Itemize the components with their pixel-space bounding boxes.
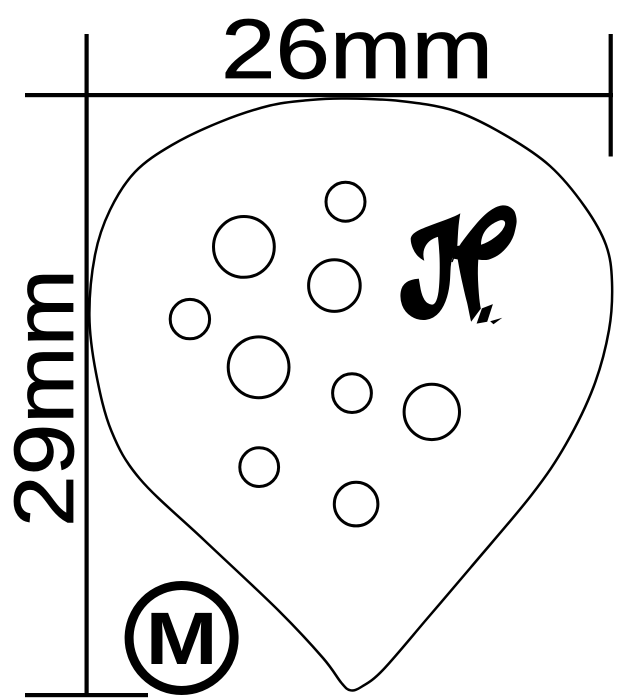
svg-text:M: M <box>146 597 218 680</box>
svg-text:29mm: 29mm <box>0 269 91 527</box>
svg-text:26mm: 26mm <box>221 2 493 96</box>
